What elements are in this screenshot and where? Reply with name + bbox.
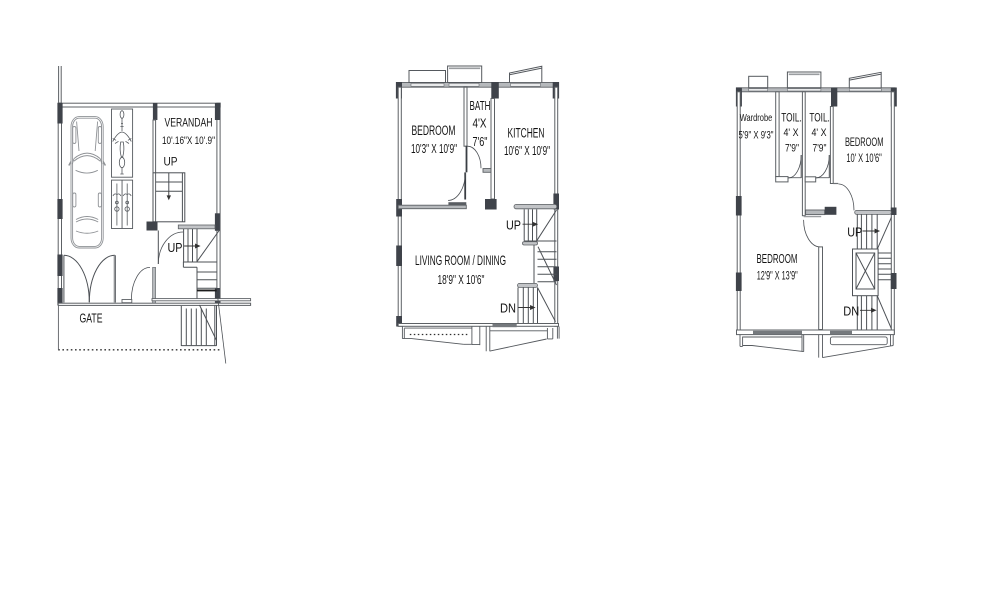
svg-text:5'9" X 9'3": 5'9" X 9'3": [739, 130, 774, 142]
svg-text:TOIL.: TOIL.: [781, 113, 802, 125]
svg-text:UP: UP: [168, 241, 183, 255]
svg-text:BEDROOM: BEDROOM: [412, 123, 456, 138]
svg-text:LIVING ROOM / DINING: LIVING ROOM / DINING: [415, 252, 506, 268]
svg-text:UP: UP: [164, 155, 178, 169]
svg-text:BEDROOM: BEDROOM: [845, 135, 884, 149]
svg-text:10'.16"X 10'.9": 10'.16"X 10'.9": [162, 135, 215, 147]
svg-text:TOIL.: TOIL.: [809, 113, 830, 125]
svg-text:KITCHEN: KITCHEN: [508, 126, 545, 141]
svg-text:UP: UP: [506, 219, 521, 233]
svg-text:4'X: 4'X: [473, 117, 488, 131]
svg-text:DN: DN: [843, 305, 859, 319]
svg-text:18'9" X 10'6": 18'9" X 10'6": [438, 272, 485, 287]
svg-text:UP: UP: [847, 226, 862, 240]
svg-text:4' X: 4' X: [784, 127, 800, 139]
svg-text:GATE: GATE: [80, 312, 103, 326]
svg-text:7'6": 7'6": [473, 135, 488, 149]
svg-text:7'9": 7'9": [813, 143, 827, 155]
svg-text:12'9" X 13'9": 12'9" X 13'9": [757, 269, 798, 283]
svg-text:10'6" X 10'9": 10'6" X 10'9": [504, 144, 550, 158]
svg-text:4' X: 4' X: [812, 127, 828, 139]
svg-text:BEDROOM: BEDROOM: [757, 252, 798, 266]
svg-text:BATH: BATH: [470, 98, 491, 113]
svg-text:10' X 10'6": 10' X 10'6": [846, 153, 882, 165]
svg-text:10'3" X 10'9": 10'3" X 10'9": [411, 142, 457, 156]
svg-text:Wardrobe: Wardrobe: [740, 112, 773, 124]
svg-text:DN: DN: [500, 302, 516, 316]
svg-text:VERANDAH: VERANDAH: [165, 118, 213, 130]
svg-text:7'9": 7'9": [785, 143, 799, 155]
